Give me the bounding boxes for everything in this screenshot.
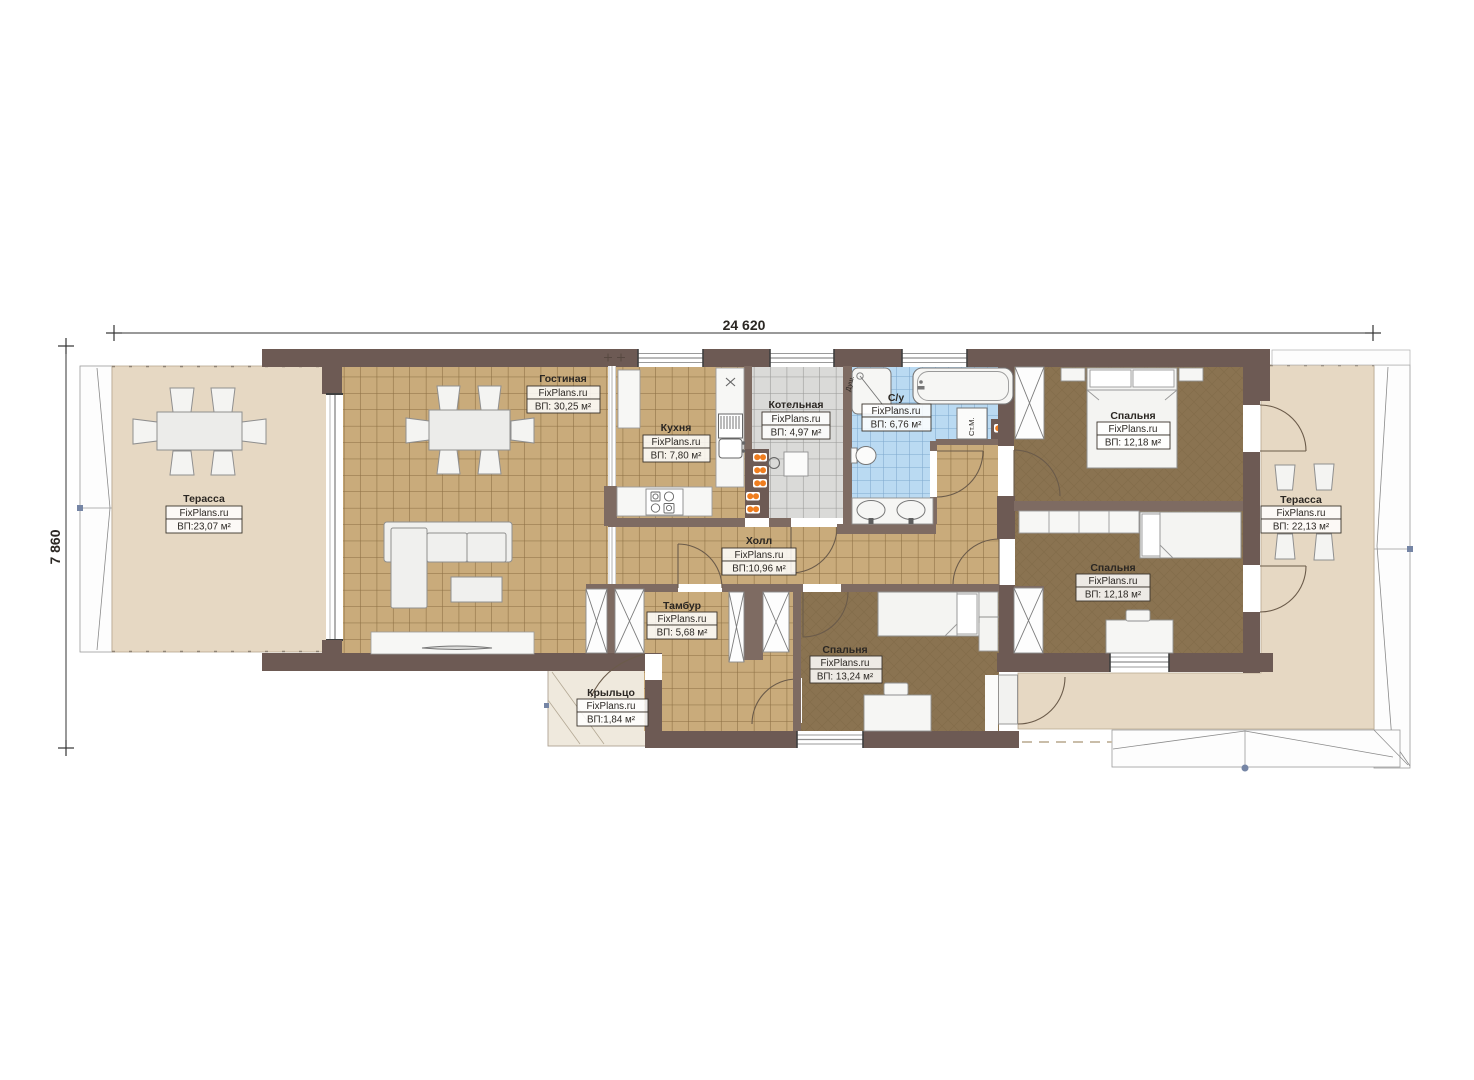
- svg-text:Терасса: Терасса: [183, 493, 225, 505]
- svg-text:Гостиная: Гостиная: [539, 373, 586, 385]
- svg-text:Кухня: Кухня: [661, 422, 692, 434]
- svg-text:Котельная: Котельная: [769, 399, 824, 411]
- svg-text:ВП: 30,25 м²: ВП: 30,25 м²: [535, 402, 592, 413]
- svg-text:ВП:1,84 м²: ВП:1,84 м²: [587, 715, 636, 726]
- svg-text:FixPlans.ru: FixPlans.ru: [1109, 424, 1158, 435]
- svg-text:ВП: 22,13 м²: ВП: 22,13 м²: [1273, 522, 1330, 533]
- svg-text:7 860: 7 860: [47, 529, 63, 564]
- svg-text:Тамбур: Тамбур: [663, 600, 701, 612]
- svg-text:FixPlans.ru: FixPlans.ru: [180, 508, 229, 519]
- svg-text:FixPlans.ru: FixPlans.ru: [772, 414, 821, 425]
- svg-text:ВП: 6,76 м²: ВП: 6,76 м²: [871, 420, 923, 431]
- svg-text:Спальня: Спальня: [822, 644, 867, 656]
- svg-text:С/у: С/у: [888, 392, 905, 404]
- svg-text:Ст.М.: Ст.М.: [967, 418, 976, 436]
- svg-text:FixPlans.ru: FixPlans.ru: [872, 406, 921, 417]
- svg-text:ВП: 12,18 м²: ВП: 12,18 м²: [1085, 590, 1142, 601]
- svg-text:24 620: 24 620: [723, 317, 766, 333]
- svg-text:FixPlans.ru: FixPlans.ru: [652, 437, 701, 448]
- svg-text:FixPlans.ru: FixPlans.ru: [821, 658, 870, 669]
- svg-text:FixPlans.ru: FixPlans.ru: [658, 614, 707, 625]
- svg-text:ВП:23,07 м²: ВП:23,07 м²: [177, 522, 231, 533]
- svg-text:FixPlans.ru: FixPlans.ru: [587, 701, 636, 712]
- svg-text:ВП: 5,68 м²: ВП: 5,68 м²: [657, 628, 709, 639]
- svg-text:ВП: 4,97 м²: ВП: 4,97 м²: [771, 428, 823, 439]
- svg-text:Спальня: Спальня: [1090, 562, 1135, 574]
- svg-text:Холл: Холл: [746, 535, 772, 547]
- svg-text:ВП: 13,24 м²: ВП: 13,24 м²: [817, 672, 874, 683]
- svg-text:ВП:10,96 м²: ВП:10,96 м²: [732, 564, 786, 575]
- svg-text:Крыльцо: Крыльцо: [587, 687, 635, 699]
- svg-text:Спальня: Спальня: [1110, 410, 1155, 422]
- svg-text:ВП: 7,80 м²: ВП: 7,80 м²: [651, 451, 703, 462]
- svg-text:ВП: 12,18 м²: ВП: 12,18 м²: [1105, 438, 1162, 449]
- svg-text:FixPlans.ru: FixPlans.ru: [735, 550, 784, 561]
- svg-text:FixPlans.ru: FixPlans.ru: [1089, 576, 1138, 587]
- svg-text:FixPlans.ru: FixPlans.ru: [539, 388, 588, 399]
- svg-text:FixPlans.ru: FixPlans.ru: [1277, 508, 1326, 519]
- svg-text:Терасса: Терасса: [1280, 494, 1322, 506]
